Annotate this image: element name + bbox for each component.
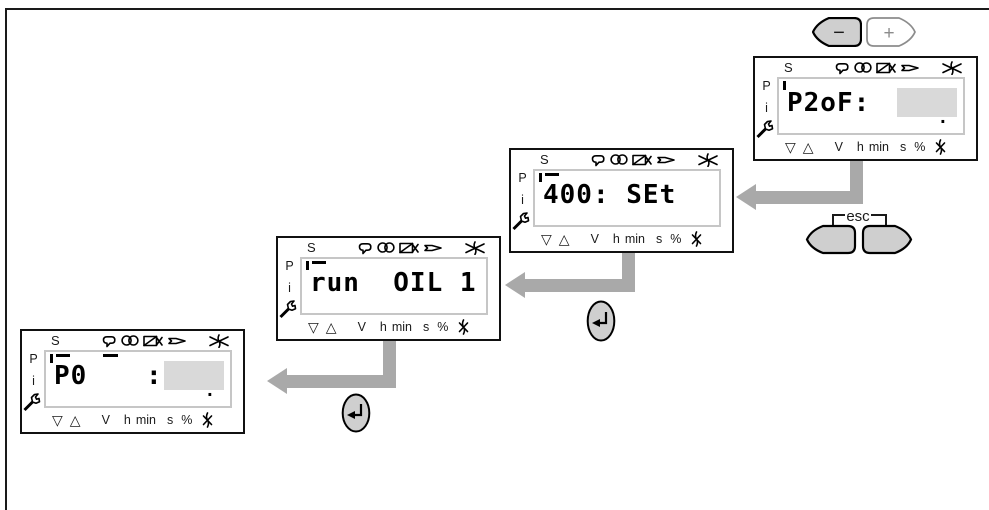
p-label: P bbox=[762, 80, 770, 93]
up-triangle-icon: △ bbox=[803, 139, 814, 156]
unit-percent-label: % bbox=[914, 140, 925, 154]
i-label: i bbox=[521, 194, 524, 207]
lcd-screen-step-1: S P i P2oF: . ▽ △ V h bbox=[753, 56, 978, 161]
lcd-display: run OIL 1 bbox=[300, 257, 488, 315]
fan-icon bbox=[377, 241, 395, 254]
lcd-bottom-symbol-row: ▽ △ V h min s % bbox=[511, 229, 732, 249]
unit-h-label: h bbox=[380, 320, 387, 334]
unit-s-label: s bbox=[423, 320, 429, 334]
value-placeholder-box bbox=[164, 361, 224, 390]
unit-v-label: V bbox=[102, 413, 110, 427]
segment-tick-marker bbox=[50, 354, 53, 363]
unit-v-label: V bbox=[835, 140, 843, 154]
unit-percent-label: % bbox=[670, 232, 681, 246]
lcd-bottom-symbol-row: ▽ △ V h min s % bbox=[22, 410, 243, 430]
value-placeholder-box bbox=[897, 88, 957, 117]
unit-s-label: s bbox=[167, 413, 173, 427]
lcd-display: P0 : . bbox=[44, 350, 232, 408]
fan-icon bbox=[610, 153, 628, 166]
unit-v-label: V bbox=[591, 232, 599, 246]
p-label: P bbox=[518, 172, 526, 185]
status-s-label: S bbox=[784, 60, 793, 75]
unit-s-label: s bbox=[656, 232, 662, 246]
esc-button-pair[interactable]: esc bbox=[798, 202, 916, 256]
reset-loop-icon bbox=[101, 334, 117, 348]
top-icons-group bbox=[357, 241, 443, 255]
lcd-text: run OIL 1 bbox=[310, 268, 477, 298]
unit-v-label: V bbox=[358, 320, 366, 334]
segment-tick-marker bbox=[783, 81, 786, 90]
decimal-point: . bbox=[205, 381, 215, 401]
fan-icon bbox=[854, 61, 872, 74]
segment-overbar-marker bbox=[545, 173, 559, 176]
burner-nozzle-icon bbox=[423, 242, 443, 254]
i-label: i bbox=[765, 102, 768, 115]
status-s-label: S bbox=[307, 240, 316, 255]
i-label: i bbox=[32, 375, 35, 388]
lcd-top-symbol-row: S bbox=[511, 151, 732, 168]
plus-label: + bbox=[883, 23, 894, 44]
lcd-screen-step-2: S P i 400: SEt ▽ △ V h bbox=[509, 148, 734, 253]
lcd-left-symbol-column: P i bbox=[280, 257, 299, 319]
unit-min-label: min bbox=[625, 232, 645, 246]
lcd-text: P2oF: bbox=[787, 88, 870, 118]
down-triangle-icon: ▽ bbox=[52, 412, 63, 429]
flame-off-icon bbox=[941, 61, 963, 75]
top-icons-group bbox=[834, 61, 920, 75]
flame-off-icon bbox=[697, 153, 719, 167]
unit-min-label: min bbox=[869, 140, 889, 154]
lcd-top-symbol-row: S bbox=[755, 59, 976, 76]
lcd-left-symbol-column: P i bbox=[513, 169, 532, 231]
unit-s-label: s bbox=[900, 140, 906, 154]
enter-button-1[interactable] bbox=[586, 300, 616, 342]
wrench-icon bbox=[511, 211, 531, 231]
fan-icon bbox=[121, 334, 139, 347]
lcd-top-symbol-row: S bbox=[22, 332, 243, 349]
burner-nozzle-icon bbox=[656, 154, 676, 166]
down-triangle-icon: ▽ bbox=[785, 139, 796, 156]
lcd-display: P2oF: . bbox=[777, 77, 965, 135]
esc-right-button[interactable] bbox=[863, 226, 911, 253]
reset-loop-icon bbox=[590, 153, 606, 167]
down-triangle-icon: ▽ bbox=[308, 319, 319, 336]
lcd-text: 400: SEt bbox=[543, 180, 676, 210]
unit-percent-label: % bbox=[181, 413, 192, 427]
flame-crossed-icon bbox=[457, 319, 470, 335]
minus-button[interactable]: − bbox=[812, 17, 862, 47]
flame-crossed-icon bbox=[934, 139, 947, 155]
status-s-label: S bbox=[540, 152, 549, 167]
minus-label: − bbox=[833, 22, 845, 44]
segment-overbar-marker bbox=[56, 354, 70, 357]
flow-arrow-1-head bbox=[736, 184, 756, 210]
p-label: P bbox=[285, 260, 293, 273]
lcd-display: 400: SEt bbox=[533, 169, 721, 227]
enter-button-2[interactable] bbox=[341, 393, 371, 433]
unit-h-label: h bbox=[857, 140, 864, 154]
segment-overbar-marker bbox=[312, 261, 326, 264]
flame-crossed-icon bbox=[690, 231, 703, 247]
reset-loop-icon bbox=[357, 241, 373, 255]
flame-off-icon bbox=[464, 241, 486, 255]
lcd-top-symbol-row: S bbox=[278, 239, 499, 256]
lcd-left-symbol-column: P i bbox=[24, 350, 43, 412]
flame-crossed-icon bbox=[201, 412, 214, 428]
top-icons-group bbox=[101, 334, 187, 348]
flow-arrow-3-head bbox=[267, 368, 287, 394]
lcd-colon: : bbox=[146, 361, 163, 391]
up-triangle-icon: △ bbox=[559, 231, 570, 248]
unit-h-label: h bbox=[124, 413, 131, 427]
wrench-icon bbox=[755, 119, 775, 139]
unit-min-label: min bbox=[392, 320, 412, 334]
p-label: P bbox=[29, 353, 37, 366]
top-icons-group bbox=[590, 153, 676, 167]
lcd-bottom-symbol-row: ▽ △ V h min s % bbox=[278, 317, 499, 337]
up-triangle-icon: △ bbox=[326, 319, 337, 336]
lcd-screen-step-4: S P i P0 : . ▽ △ V h bbox=[20, 329, 245, 434]
burner-nozzle-icon bbox=[167, 335, 187, 347]
lcd-panel: S P i 400: SEt ▽ △ V h bbox=[509, 148, 734, 253]
wrench-icon bbox=[278, 299, 298, 319]
valve-icon bbox=[399, 242, 419, 254]
flow-arrow-2-head bbox=[505, 272, 525, 298]
unit-min-label: min bbox=[136, 413, 156, 427]
segment-overbar2-marker bbox=[103, 354, 118, 357]
wrench-icon bbox=[22, 392, 42, 412]
decimal-point: . bbox=[938, 108, 948, 128]
lcd-left-symbol-column: P i bbox=[757, 77, 776, 139]
down-triangle-icon: ▽ bbox=[541, 231, 552, 248]
lcd-screen-step-3: S P i run OIL 1 ▽ △ V bbox=[276, 236, 501, 341]
segment-tick-marker bbox=[539, 173, 542, 182]
esc-label: esc bbox=[846, 208, 870, 225]
flow-arrow-2-horizontal bbox=[525, 279, 635, 292]
i-label: i bbox=[288, 282, 291, 295]
esc-left-button[interactable] bbox=[807, 226, 855, 253]
lcd-panel: S P i P2oF: . ▽ △ V h bbox=[753, 56, 978, 161]
valve-icon bbox=[143, 335, 163, 347]
status-s-label: S bbox=[51, 333, 60, 348]
flow-arrow-3-horizontal bbox=[287, 375, 396, 388]
plus-button[interactable]: + bbox=[866, 17, 916, 47]
valve-icon bbox=[632, 154, 652, 166]
lcd-bottom-symbol-row: ▽ △ V h min s % bbox=[755, 137, 976, 157]
unit-percent-label: % bbox=[437, 320, 448, 334]
valve-icon bbox=[876, 62, 896, 74]
lcd-text: P0 bbox=[54, 361, 87, 391]
lcd-panel: S P i run OIL 1 ▽ △ V bbox=[276, 236, 501, 341]
reset-loop-icon bbox=[834, 61, 850, 75]
lcd-panel: S P i P0 : . ▽ △ V h bbox=[20, 329, 245, 434]
flame-off-icon bbox=[208, 334, 230, 348]
up-triangle-icon: △ bbox=[70, 412, 81, 429]
segment-tick-marker bbox=[306, 261, 309, 270]
unit-h-label: h bbox=[613, 232, 620, 246]
burner-nozzle-icon bbox=[900, 62, 920, 74]
